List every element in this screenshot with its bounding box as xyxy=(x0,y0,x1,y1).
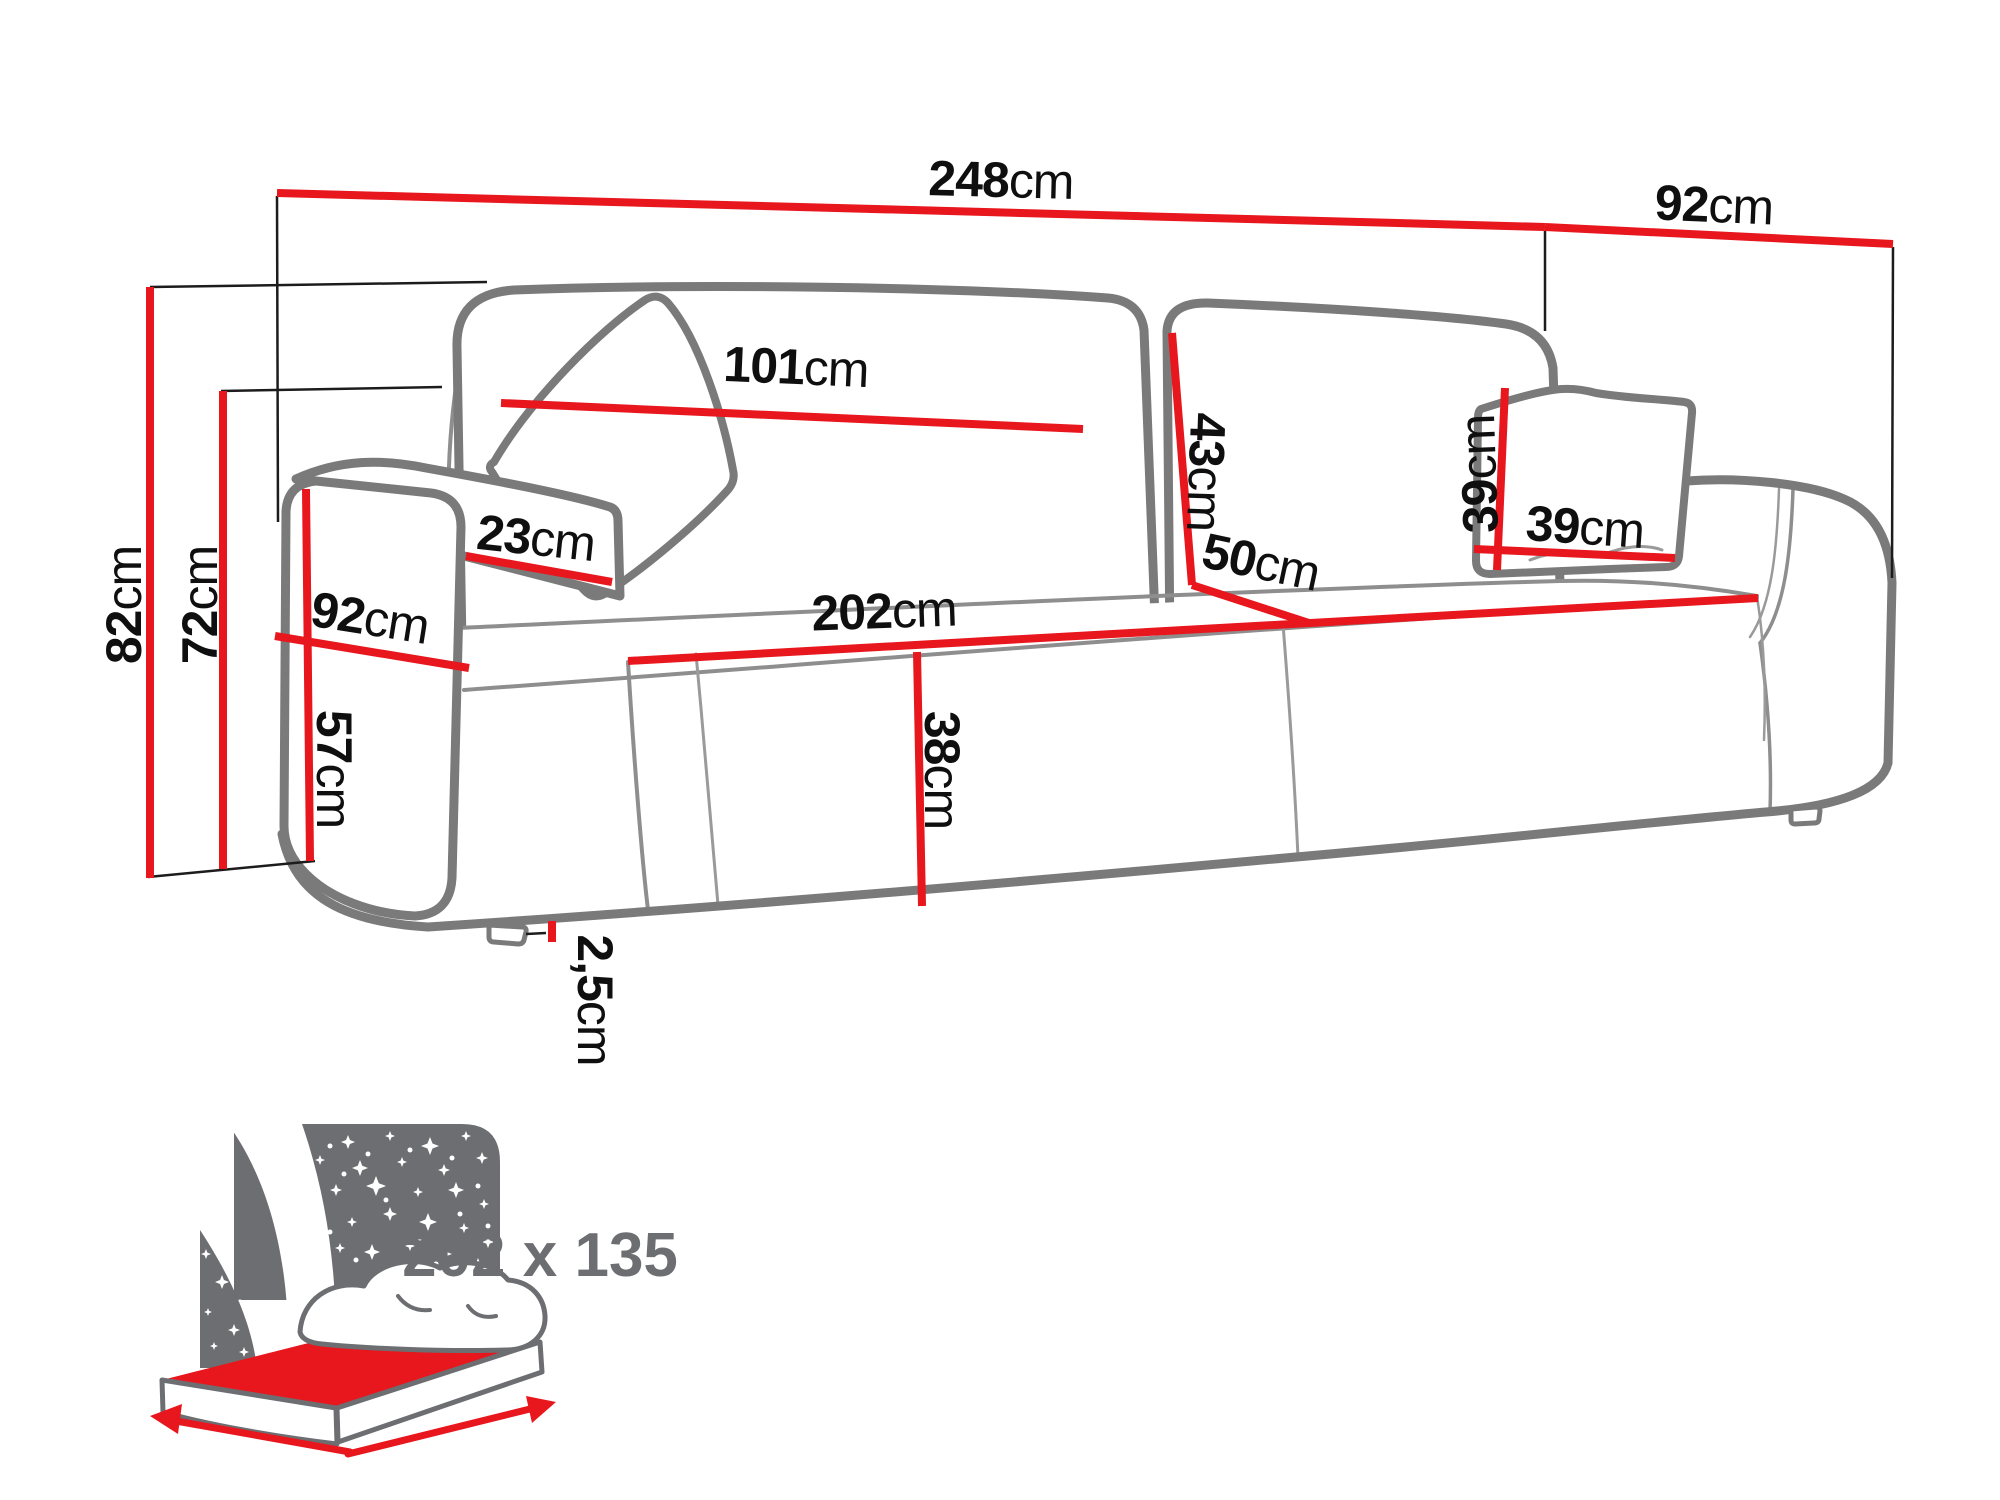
star-dot xyxy=(328,1144,333,1149)
label-back-cushion-height-unit: cm xyxy=(1176,466,1234,533)
sofa-leg-left xyxy=(489,925,526,944)
label-seat-width-unit: cm xyxy=(891,580,958,638)
label-overall-depth-value: 92 xyxy=(1654,174,1710,232)
extension-line-72 xyxy=(221,387,442,391)
label-backrest-height: 72cm xyxy=(175,546,225,664)
star-dot xyxy=(458,1212,463,1217)
label-overall-width-value: 248 xyxy=(928,150,1010,208)
label-overall-height-value: 82 xyxy=(96,611,152,665)
label-armrest-height-value: 57 xyxy=(306,710,362,764)
label-leg-height-unit: cm xyxy=(567,1001,623,1066)
label-pillow-height-unit: cm xyxy=(1449,414,1507,481)
label-seat-width: 202cm xyxy=(811,583,958,638)
label-seat-height-value: 38 xyxy=(914,711,970,765)
sofa-drawing xyxy=(278,287,1897,944)
label-back-cushion-width: 101cm xyxy=(722,339,869,395)
label-armrest-height-unit: cm xyxy=(306,763,362,828)
label-overall-width-unit: cm xyxy=(1008,152,1074,210)
label-overall-width: 248cm xyxy=(928,153,1074,207)
label-back-cushion-height: 43cm xyxy=(1179,412,1233,532)
label-armrest-width-value: 23 xyxy=(474,504,533,565)
label-pillow-height: 39cm xyxy=(1452,414,1506,534)
label-armrest-depth-unit: cm xyxy=(360,589,433,654)
label-armrest-width: 23cm xyxy=(475,507,598,569)
label-seat-height-unit: cm xyxy=(914,764,970,829)
label-back-cushion-width-value: 101 xyxy=(722,336,805,395)
label-backrest-height-unit: cm xyxy=(172,546,228,611)
extension-line-right-vertical xyxy=(1892,247,1893,578)
label-armrest-depth-value: 92 xyxy=(307,581,369,645)
label-pillow-width: 39cm xyxy=(1524,498,1645,556)
depth-arrow-head xyxy=(526,1396,556,1423)
label-back-cushion-height-value: 43 xyxy=(1178,412,1236,468)
extension-line-82 xyxy=(150,282,487,287)
star-dot xyxy=(342,1172,347,1177)
sofa-leg-right xyxy=(1791,807,1820,824)
label-armrest-height: 57cm xyxy=(309,710,359,828)
label-armrest-width-unit: cm xyxy=(528,510,598,572)
label-backrest-height-value: 72 xyxy=(172,611,228,665)
label-seat-width-value: 202 xyxy=(811,583,893,642)
extension-line-left-vertical xyxy=(277,196,278,522)
sofa-dimension-diagram: 248cm 92cm 82cm 72cm 101cm 43cm 23cm 92c… xyxy=(0,0,2000,1500)
label-pillow-width-unit: cm xyxy=(1578,499,1646,559)
label-back-cushion-width-unit: cm xyxy=(803,339,870,398)
label-seat-height: 38cm xyxy=(917,711,967,829)
label-pillow-width-value: 39 xyxy=(1524,495,1581,555)
star-dot xyxy=(354,1258,359,1263)
label-leg-height-value: 2,5 xyxy=(567,934,623,1001)
star-dot xyxy=(366,1152,371,1157)
label-overall-height: 82cm xyxy=(99,546,149,664)
label-overall-height-unit: cm xyxy=(96,546,152,611)
star-dot xyxy=(476,1184,481,1189)
label-leg-height: 2,5cm xyxy=(570,934,620,1065)
label-overall-depth-unit: cm xyxy=(1707,177,1774,236)
star-dot xyxy=(384,1198,389,1203)
star-dot xyxy=(450,1156,455,1161)
star-dot xyxy=(408,1148,413,1153)
extension-line-leg xyxy=(526,933,546,934)
label-pillow-height-value: 39 xyxy=(1451,479,1509,535)
label-sleeping-area: 202 x 135 xyxy=(402,1225,678,1287)
label-overall-depth: 92cm xyxy=(1654,177,1774,232)
dimension-line-overall-width-248 xyxy=(277,193,1545,227)
